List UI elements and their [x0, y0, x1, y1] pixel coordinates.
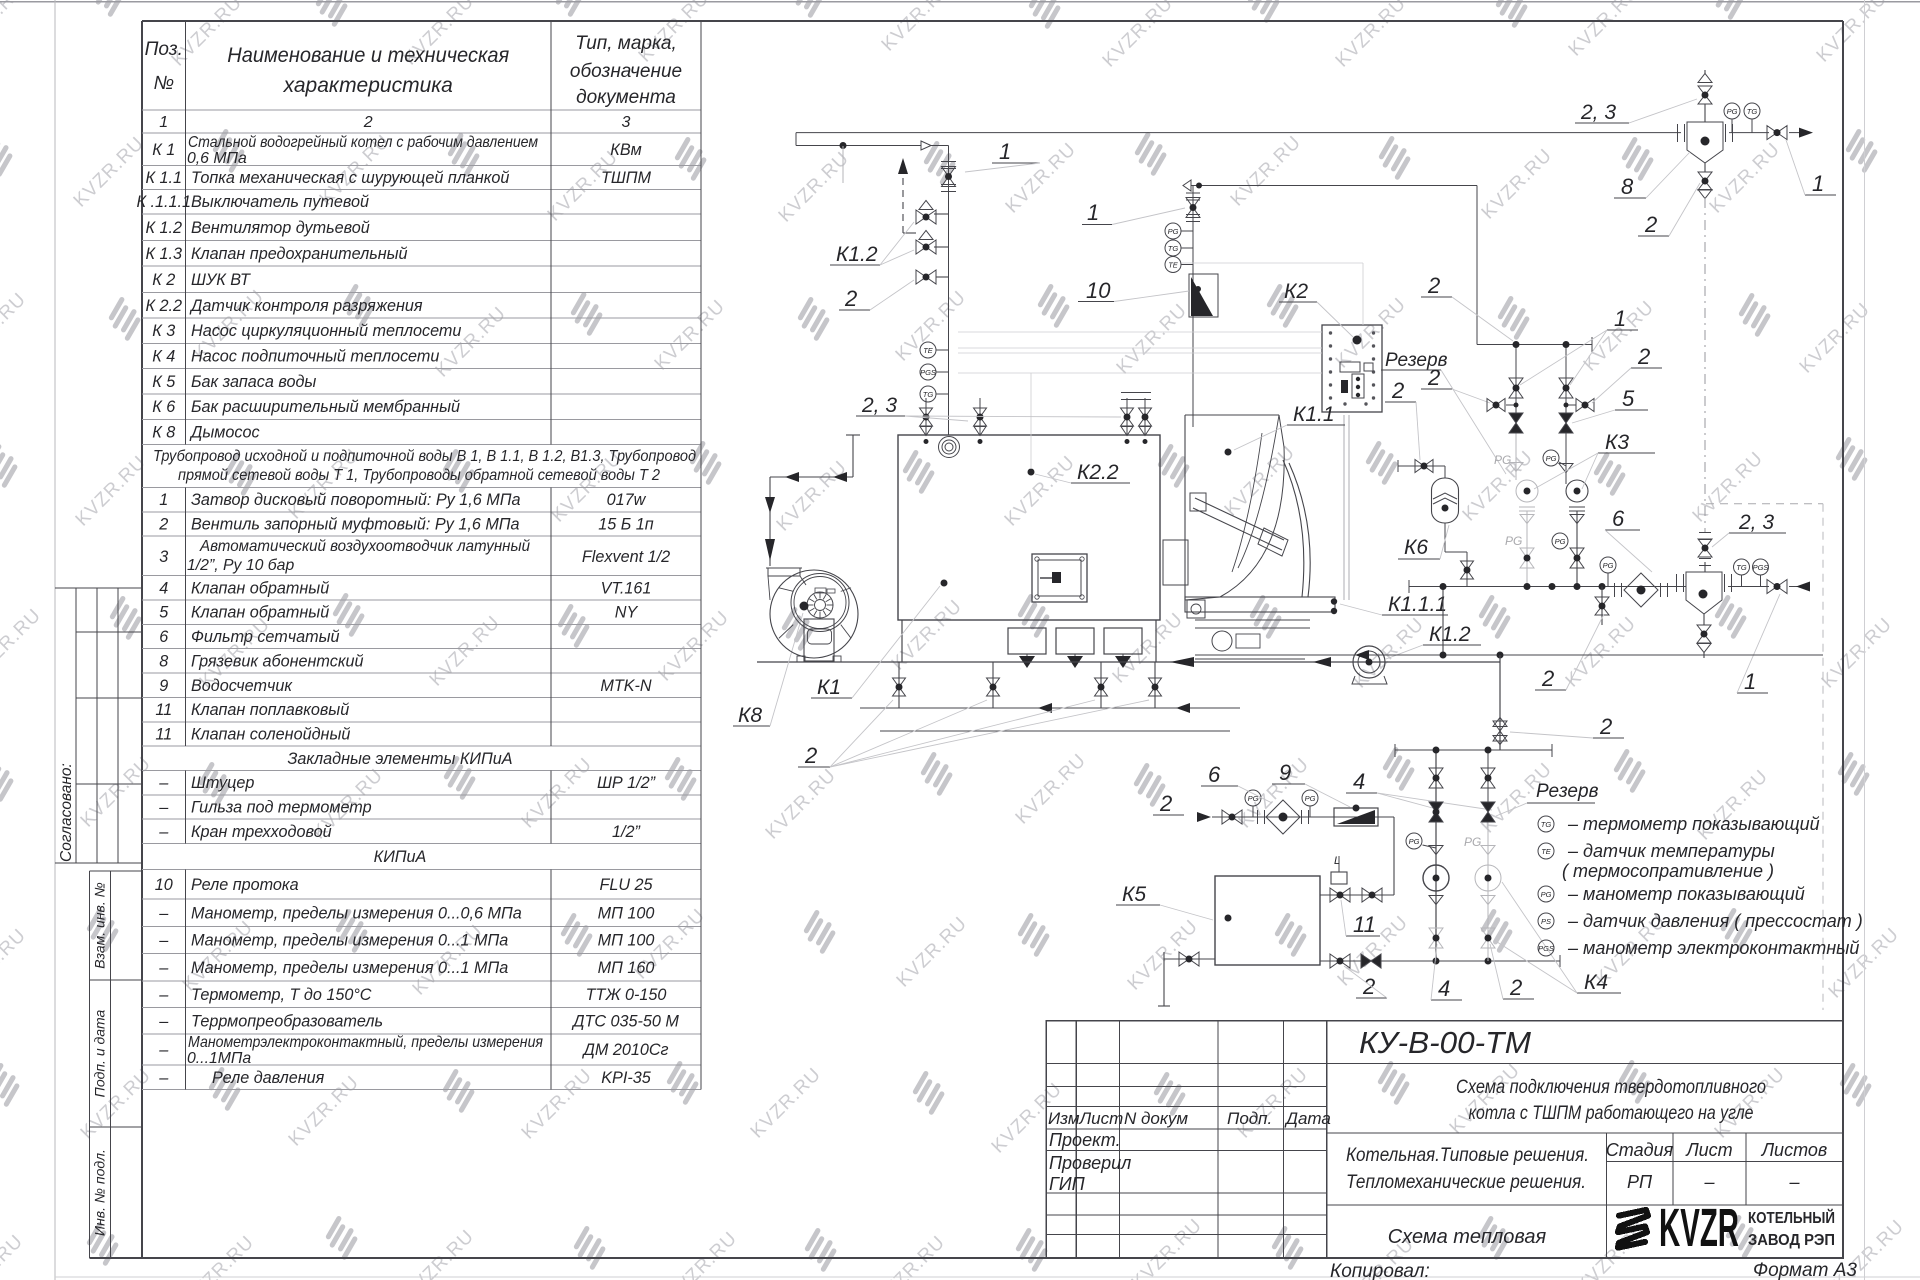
svg-text:1/2”: 1/2” [612, 823, 641, 841]
svg-text:обозначение: обозначение [570, 61, 682, 82]
svg-text:KVZR.RU: KVZR.RU [663, 1228, 742, 1280]
svg-text:Стадия: Стадия [1606, 1140, 1674, 1160]
svg-text:К1.2: К1.2 [836, 243, 878, 266]
svg-text:KVZR.RU: KVZR.RU [77, 1065, 156, 1144]
svg-text:KVZR.RU: KVZR.RU [651, 296, 730, 375]
svg-text:KVZR.RU: KVZR.RU [1565, 0, 1644, 61]
svg-text:0,6 МПа: 0,6 МПа [187, 150, 247, 167]
svg-text:Бак запаса воды: Бак запаса воды [191, 373, 316, 391]
svg-text:KVZR.RU: KVZR.RU [1234, 1064, 1313, 1143]
svg-text:KVZR.RU: KVZR.RU [0, 289, 30, 368]
svg-text:11: 11 [1353, 912, 1376, 937]
svg-text:ШР 1/2”: ШР 1/2” [597, 774, 656, 792]
svg-text:2: 2 [158, 516, 168, 534]
svg-text:2, 3: 2, 3 [1738, 511, 1774, 534]
svg-text:KVZR.RU: KVZR.RU [0, 605, 45, 684]
svg-text:Схема тепловая: Схема тепловая [1388, 1226, 1547, 1248]
svg-text:6: 6 [1612, 506, 1625, 531]
svg-text:Закладные элементы КИПиА: Закладные элементы КИПиА [287, 750, 512, 768]
svg-text:–: – [158, 1012, 169, 1030]
svg-text:МП 160: МП 160 [598, 959, 655, 977]
svg-text:2: 2 [1541, 666, 1554, 691]
svg-text:N докум: N докум [1124, 1109, 1188, 1128]
svg-text:Вентилятор дутьевой: Вентилятор дутьевой [191, 219, 370, 237]
svg-text:2: 2 [363, 114, 373, 131]
svg-text:017w: 017w [607, 491, 647, 509]
svg-text:КОТЕЛЬНЫЙ: КОТЕЛЬНЫЙ [1748, 1209, 1835, 1227]
svg-text:Манометр, пределы измерения 0: Манометр, пределы измерения 0...0,6 МПа [191, 904, 522, 922]
svg-text:PG: PG [1603, 561, 1614, 570]
svg-text:Тепломеханические решения.: Тепломеханические решения. [1346, 1172, 1586, 1193]
svg-text:Термометр, Т до 150°С: Термометр, Т до 150°С [191, 986, 372, 1004]
svg-text:KVZR.RU: KVZR.RU [72, 452, 151, 531]
svg-text:NY: NY [615, 604, 639, 622]
svg-text:К 1.3: К 1.3 [145, 245, 182, 263]
svg-text:1: 1 [999, 139, 1011, 164]
svg-text:KVZR.RU: KVZR.RU [518, 1065, 597, 1144]
svg-text:–: – [158, 932, 169, 950]
svg-text:К 5: К 5 [152, 373, 176, 391]
svg-text:Водосчетчик: Водосчетчик [191, 677, 293, 695]
svg-text:KVZR.RU: KVZR.RU [77, 753, 156, 832]
svg-text:Лист: Лист [1685, 1140, 1732, 1160]
svg-text:6: 6 [159, 628, 168, 646]
svg-text:– термометр показывающий: – термометр показывающий [1567, 814, 1820, 834]
svg-text:VT.161: VT.161 [601, 579, 652, 597]
svg-text:11: 11 [155, 701, 172, 719]
svg-text:К 2.2: К 2.2 [145, 297, 182, 315]
svg-text:8: 8 [159, 652, 168, 670]
svg-text:KVZR.RU: KVZR.RU [1818, 614, 1897, 693]
svg-text:KVZR.RU: KVZR.RU [871, 1232, 950, 1280]
svg-text:KVZR.RU: KVZR.RU [893, 913, 972, 992]
svg-text:Подп. и дата: Подп. и дата [92, 1009, 108, 1097]
svg-text:Автоматический воздухоотводчик: Автоматический воздухоотводчик латунный [199, 538, 530, 555]
svg-text:Дымосос: Дымосос [189, 423, 260, 441]
svg-text:Проект.: Проект. [1049, 1130, 1121, 1150]
svg-text:Гильза под термометр: Гильза под термометр [191, 799, 372, 817]
svg-text:Клапан обратный: Клапан обратный [191, 604, 329, 622]
svg-text:TE: TE [1168, 260, 1179, 269]
svg-text:PG: PG [1546, 454, 1557, 463]
svg-text:KVZR.RU: KVZR.RU [1478, 145, 1557, 224]
svg-text:PGS: PGS [1538, 944, 1554, 953]
svg-text:К1.2: К1.2 [1429, 623, 1471, 646]
svg-text:PG: PG [1464, 835, 1481, 849]
svg-text:2: 2 [1637, 344, 1650, 369]
svg-text:К1.1.1: К1.1.1 [1388, 593, 1447, 616]
svg-text:2: 2 [1644, 212, 1657, 237]
svg-text:2: 2 [844, 286, 857, 311]
svg-text:PGS: PGS [1753, 563, 1769, 572]
svg-text:– манометр электроконтактный: – манометр электроконтактный [1567, 938, 1859, 958]
svg-text:KVZR.RU: KVZR.RU [655, 607, 734, 686]
svg-text:TE: TE [923, 346, 934, 355]
svg-text:TG: TG [1747, 107, 1758, 116]
svg-text:KVZR.RU: KVZR.RU [1001, 452, 1080, 531]
svg-text:Насос циркуляционный теплосети: Насос циркуляционный теплосети [191, 322, 461, 340]
svg-text:К 1.2: К 1.2 [145, 219, 182, 237]
svg-text:Листов: Листов [1761, 1140, 1828, 1160]
svg-text:К 1.1: К 1.1 [145, 169, 182, 187]
svg-text:KVZR.RU: KVZR.RU [762, 765, 841, 844]
svg-text:KVZR: KVZR [1659, 1198, 1739, 1258]
svg-text:–: – [158, 986, 169, 1004]
svg-text:Наименование и техническая: Наименование и техническая [227, 44, 509, 67]
svg-text:L: L [1334, 855, 1340, 867]
svg-text:Бак расширительный мембранный: Бак расширительный мембранный [191, 398, 460, 416]
svg-text:KVZR.RU: KVZR.RU [0, 0, 29, 58]
svg-text:Стальной водогрейный котел с р: Стальной водогрейный котел с рабочим дав… [188, 134, 538, 151]
svg-text:TG: TG [1736, 563, 1747, 572]
svg-text:К3: К3 [1605, 431, 1629, 454]
svg-text:KVZR.RU: KVZR.RU [1099, 0, 1178, 72]
svg-text:–: – [158, 799, 169, 817]
svg-text:К8: К8 [738, 704, 762, 727]
svg-text:Клапан соленойдный: Клапан соленойдный [191, 726, 350, 744]
svg-text:ШУК ВТ: ШУК ВТ [191, 271, 251, 289]
svg-text:Резерв: Резерв [1536, 781, 1599, 802]
svg-text:5: 5 [159, 604, 169, 622]
svg-text:– датчик давления ( прессоста: – датчик давления ( прессостат ) [1567, 911, 1863, 931]
svg-text:KVZR.RU: KVZR.RU [1113, 300, 1192, 379]
svg-text:9: 9 [1279, 760, 1291, 785]
svg-text:KVZR.RU: KVZR.RU [878, 0, 957, 56]
svg-text:KVZR.RU: KVZR.RU [1796, 299, 1875, 378]
svg-text:1: 1 [1087, 200, 1099, 225]
svg-text:KVZR.RU: KVZR.RU [1562, 613, 1641, 692]
svg-text:Кран трехходовой: Кран трехходовой [191, 823, 332, 841]
svg-text:5: 5 [1622, 386, 1635, 411]
svg-text:PG: PG [1305, 794, 1316, 803]
svg-text:1: 1 [1614, 306, 1626, 331]
svg-text:–: – [158, 959, 169, 977]
svg-text:№: № [153, 73, 174, 94]
svg-text:документа: документа [576, 87, 676, 108]
svg-text:–: – [158, 1041, 169, 1059]
svg-text:KVZR.RU: KVZR.RU [773, 457, 852, 536]
svg-text:TG: TG [923, 390, 934, 399]
svg-text:К1.1: К1.1 [1293, 403, 1335, 426]
svg-text:KPI-35: KPI-35 [601, 1069, 651, 1087]
svg-text:PG: PG [1541, 890, 1552, 899]
svg-text:TG: TG [1541, 820, 1552, 829]
svg-text:3: 3 [622, 114, 631, 131]
svg-text:Террмопреобразователь: Террмопреобразователь [191, 1012, 383, 1030]
svg-text:КУ-В-00-ТМ: КУ-В-00-ТМ [1359, 1025, 1531, 1060]
svg-text:Копировал:: Копировал: [1330, 1261, 1430, 1280]
svg-text:4: 4 [1353, 769, 1365, 794]
svg-text:PG: PG [1409, 837, 1420, 846]
svg-text:Инв. № подл.: Инв. № подл. [92, 1149, 108, 1236]
svg-text:2: 2 [1509, 975, 1522, 1000]
svg-text:2: 2 [1362, 974, 1375, 999]
svg-text:KVZR.RU: KVZR.RU [1128, 1215, 1207, 1280]
svg-text:–: – [158, 1069, 169, 1087]
svg-text:MTK-N: MTK-N [600, 677, 652, 695]
svg-text:1/2”, Ру 10 бар: 1/2”, Ру 10 бар [187, 557, 294, 574]
svg-text:PG: PG [1168, 227, 1179, 236]
svg-text:Дата: Дата [1284, 1109, 1331, 1128]
svg-text:Подп.: Подп. [1227, 1109, 1272, 1128]
svg-text:KVZR.RU: KVZR.RU [432, 303, 511, 382]
svg-text:Flexvent 1/2: Flexvent 1/2 [582, 548, 670, 566]
svg-text:Выключатель путевой: Выключатель путевой [191, 193, 369, 211]
svg-text:Формат А3: Формат А3 [1753, 1260, 1857, 1280]
svg-text:PG: PG [1494, 453, 1511, 467]
svg-text:Затвор дисковый поворотный: Ру: Затвор дисковый поворотный: Ру 1,6 МПа [191, 491, 521, 509]
svg-text:KVZR.RU: KVZR.RU [747, 1064, 826, 1143]
svg-text:Клапан обратный: Клапан обратный [191, 579, 329, 597]
svg-text:2, 3: 2, 3 [861, 394, 897, 417]
svg-text:4: 4 [1438, 976, 1450, 1001]
svg-text:2: 2 [1599, 714, 1612, 739]
svg-text:прямой сетевой воды Т 1, Труб: прямой сетевой воды Т 1, Трубопроводы об… [178, 467, 660, 484]
svg-text:Согласовано:: Согласовано: [58, 763, 75, 862]
svg-text:–: – [158, 774, 169, 792]
svg-text:ДТС 035-50 М: ДТС 035-50 М [571, 1012, 679, 1030]
svg-text:ТТЖ 0-150: ТТЖ 0-150 [586, 986, 667, 1004]
svg-text:PG: PG [1727, 107, 1738, 116]
svg-text:Грязевик абонентский: Грязевик абонентский [191, 652, 363, 670]
svg-text:2: 2 [1427, 273, 1440, 298]
svg-text:Схема подключения твердотоплив: Схема подключения твердотопливного [1456, 1077, 1766, 1098]
svg-text:Проверил: Проверил [1049, 1153, 1131, 1173]
svg-text:Насос подпиточный теплосети: Насос подпиточный теплосети [191, 347, 439, 365]
svg-text:0...1МПа: 0...1МПа [187, 1050, 251, 1067]
svg-text:Манометр, пределы измерения: Манометр, пределы измерения 0...1 МПа [191, 959, 508, 977]
svg-text:KVZR.RU: KVZR.RU [1221, 442, 1300, 521]
svg-text:К 3: К 3 [152, 322, 175, 340]
svg-text:К 6: К 6 [152, 398, 175, 416]
svg-text:ДМ 2010Сг: ДМ 2010Сг [581, 1041, 668, 1059]
svg-text:PG: PG [1505, 534, 1522, 548]
svg-text:–: – [158, 904, 169, 922]
svg-text:Клапан поплавковый: Клапан поплавковый [191, 701, 349, 719]
svg-text:KVZR.RU: KVZR.RU [1227, 132, 1306, 211]
svg-text:2: 2 [804, 743, 817, 768]
svg-text:KVZR.RU: KVZR.RU [1446, 1060, 1525, 1139]
svg-text:ЗАВОД РЭП: ЗАВОД РЭП [1748, 1232, 1835, 1249]
svg-text:KVZR.RU: KVZR.RU [179, 917, 258, 996]
svg-text:Реле протока: Реле протока [191, 876, 299, 894]
svg-text:ТШПМ: ТШПМ [601, 169, 652, 187]
svg-text:4: 4 [159, 579, 168, 597]
svg-text:Топка механическая с шурующей: Топка механическая с шурующей планкой [191, 169, 509, 187]
svg-text:К 1: К 1 [152, 141, 175, 159]
svg-text:Котельная.Типовые решения.: Котельная.Типовые решения. [1346, 1145, 1589, 1166]
svg-text:–: – [158, 823, 169, 841]
svg-text:–: – [1703, 1172, 1715, 1192]
svg-text:PGS: PGS [920, 368, 936, 377]
svg-text:К6: К6 [1404, 536, 1428, 559]
svg-text:К 8: К 8 [152, 423, 175, 441]
svg-text:К 4: К 4 [152, 347, 175, 365]
svg-text:KVZR.RU: KVZR.RU [1012, 750, 1091, 829]
svg-text:TG: TG [1168, 244, 1179, 253]
svg-text:ИзмЛист: ИзмЛист [1048, 1109, 1123, 1128]
svg-text:Вентиль запорный муфтовый: Ру: Вентиль запорный муфтовый: Ру 1,6 МПа [191, 516, 520, 534]
svg-text:КИПиА: КИПиА [374, 848, 427, 866]
svg-text:KVZR.RU: KVZR.RU [1813, 0, 1892, 67]
svg-text:котла с ТШПМ работающего на уг: котла с ТШПМ работающего на угле [1469, 1103, 1754, 1124]
svg-text:2, 3: 2, 3 [1580, 101, 1616, 124]
svg-text:Датчик контроля разряжения: Датчик контроля разряжения [189, 297, 423, 315]
svg-text:10: 10 [1086, 278, 1111, 303]
svg-text:11: 11 [155, 726, 172, 744]
svg-text:Реле давления: Реле давления [212, 1069, 325, 1087]
svg-text:KVZR.RU: KVZR.RU [1124, 916, 1203, 995]
svg-text:характеристика: характеристика [283, 74, 453, 97]
svg-text:10: 10 [155, 876, 173, 894]
svg-text:Взам. инв. №: Взам. инв. № [92, 882, 108, 969]
svg-text:К4: К4 [1584, 971, 1608, 994]
svg-text:KVZR.RU: KVZR.RU [426, 612, 505, 691]
svg-text:KVZR.RU: KVZR.RU [180, 1232, 259, 1280]
svg-text:2: 2 [1159, 791, 1172, 816]
svg-text:1: 1 [1812, 171, 1824, 196]
svg-text:Манометр, пределы измерения: Манометр, пределы измерения 0...1 МПа [191, 932, 508, 950]
svg-text:PS: PS [1541, 917, 1551, 926]
svg-text:1: 1 [159, 491, 168, 509]
svg-text:8: 8 [1621, 174, 1634, 199]
svg-text:МП 100: МП 100 [598, 904, 655, 922]
svg-text:К .1.1.1: К .1.1.1 [136, 193, 191, 211]
svg-text:KVZR.RU: KVZR.RU [400, 1226, 479, 1280]
svg-text:К2: К2 [1284, 280, 1308, 303]
svg-text:KVZR.RU: KVZR.RU [1332, 0, 1411, 72]
svg-text:KVZR.RU: KVZR.RU [0, 925, 30, 1004]
svg-text:KVZR.RU: KVZR.RU [0, 1231, 27, 1280]
svg-text:2: 2 [1427, 365, 1440, 390]
svg-text:– манометр показывающий: – манометр показывающий [1567, 884, 1805, 904]
svg-text:6: 6 [1208, 762, 1221, 787]
svg-text:15 Б 1п: 15 Б 1п [598, 516, 654, 534]
svg-text:– датчик температуры: – датчик температуры [1567, 841, 1775, 861]
svg-text:Трубопровод исходной и подпито: Трубопровод исходной и подпиточной воды … [153, 448, 696, 465]
svg-text:( термосопративление ): ( термосопративление ) [1562, 861, 1774, 881]
svg-text:–: – [1788, 1172, 1800, 1192]
svg-text:KVZR.RU: KVZR.RU [518, 754, 597, 833]
svg-text:Фильтр сетчатый: Фильтр сетчатый [191, 628, 340, 646]
svg-text:Манометрэлектроконтактный, пре: Манометрэлектроконтактный, пределы измер… [188, 1034, 543, 1051]
svg-text:FLU 25: FLU 25 [599, 876, 653, 894]
svg-text:К1: К1 [817, 676, 841, 699]
svg-text:РП: РП [1627, 1172, 1653, 1192]
svg-text:KVZR.RU: KVZR.RU [775, 148, 854, 227]
svg-text:Штуцер: Штуцер [191, 774, 254, 792]
svg-text:К 2: К 2 [152, 271, 175, 289]
svg-text:KVZR.RU: KVZR.RU [1706, 139, 1785, 218]
svg-text:KVZR.RU: KVZR.RU [1002, 139, 1081, 218]
svg-text:ГИП: ГИП [1049, 1174, 1086, 1194]
svg-text:3: 3 [159, 548, 168, 566]
svg-text:КВм: КВм [610, 141, 641, 159]
svg-text:К5: К5 [1122, 883, 1146, 906]
svg-text:1: 1 [159, 114, 168, 131]
svg-text:Поз.: Поз. [145, 39, 183, 60]
svg-text:К2.2: К2.2 [1077, 461, 1119, 484]
svg-text:PG: PG [1555, 537, 1566, 546]
svg-text:Клапан предохранительный: Клапан предохранительный [191, 245, 408, 263]
svg-text:Тип, марка,: Тип, марка, [575, 33, 677, 54]
svg-text:TE: TE [1541, 847, 1552, 856]
svg-text:МП 100: МП 100 [598, 932, 655, 950]
svg-text:9: 9 [159, 677, 168, 695]
svg-text:2: 2 [1391, 378, 1404, 403]
